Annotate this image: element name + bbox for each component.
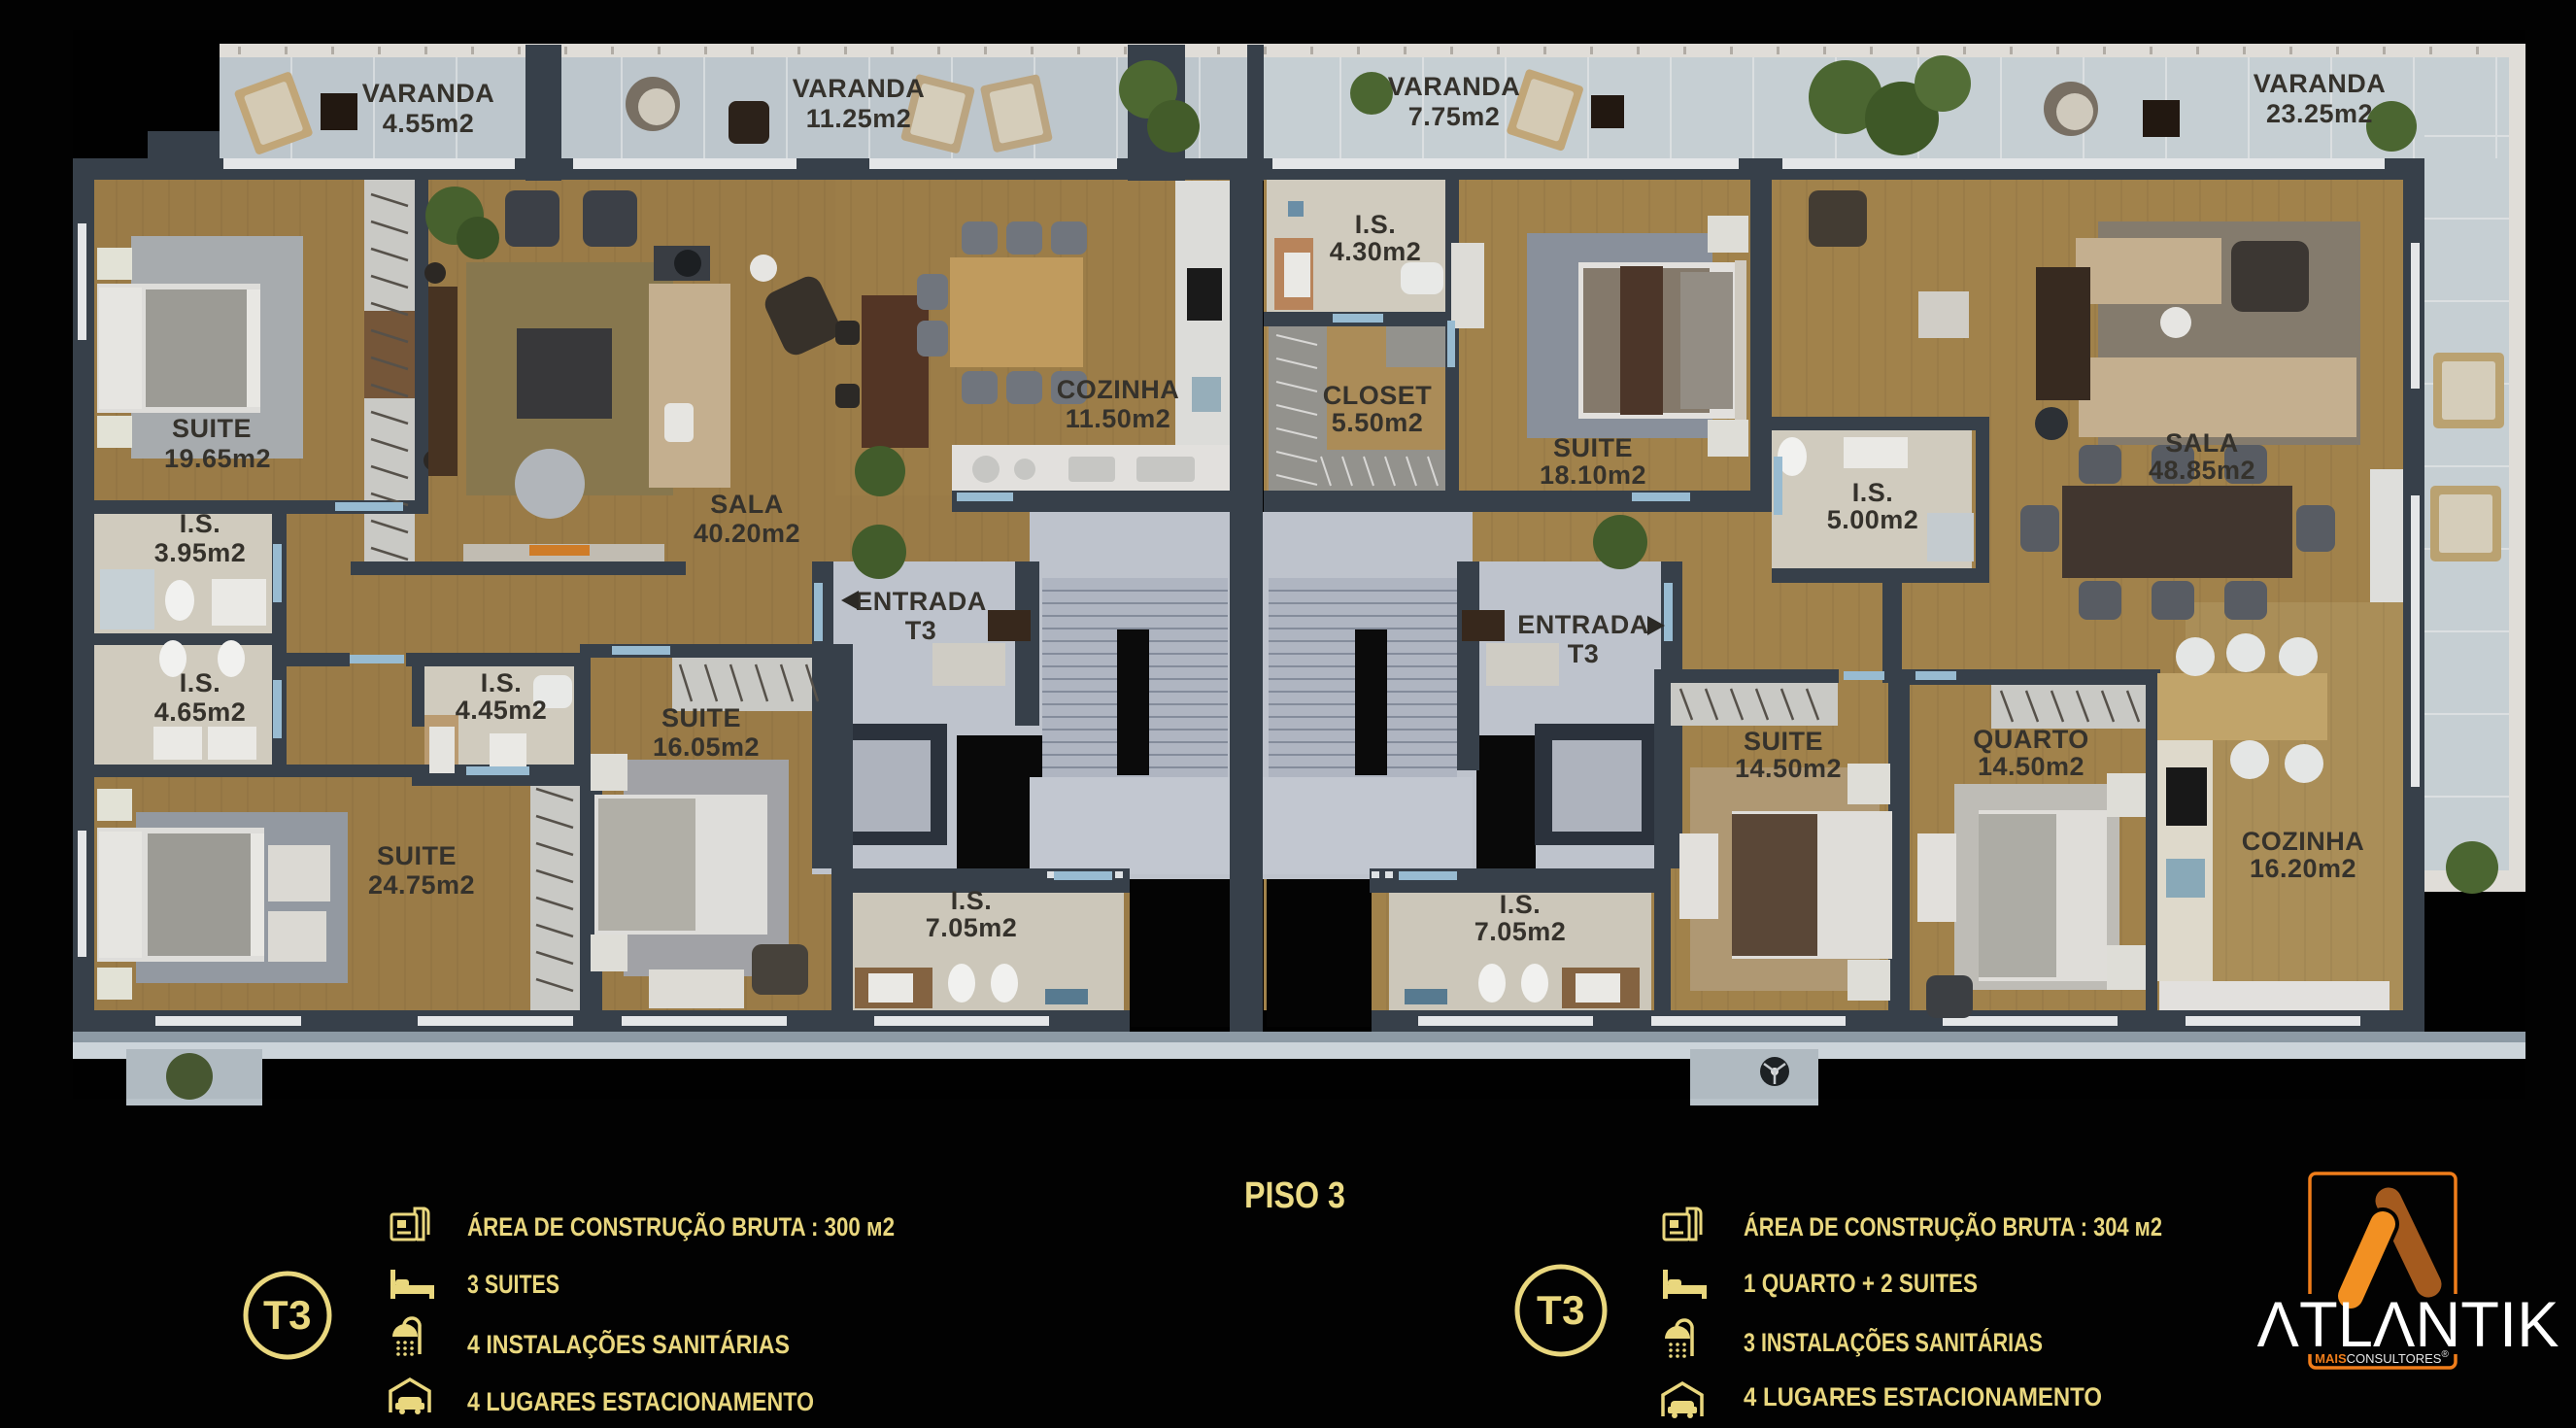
svg-text:1 QUARTO + 2 SUITES: 1 QUARTO + 2 SUITES — [1744, 1269, 1978, 1298]
svg-text:I.S.: I.S. — [180, 668, 221, 697]
svg-text:4.30m2: 4.30m2 — [1330, 237, 1422, 266]
svg-text:PISO 3: PISO 3 — [1244, 1175, 1345, 1216]
svg-text:CLOSET: CLOSET — [1323, 381, 1433, 410]
svg-text:11.25m2: 11.25m2 — [806, 104, 912, 133]
svg-text:SUITE: SUITE — [377, 841, 457, 870]
svg-text:4.55m2: 4.55m2 — [383, 109, 475, 138]
svg-text:3 INSTALAÇÕES SANITÁRIAS: 3 INSTALAÇÕES SANITÁRIAS — [1744, 1327, 2043, 1357]
svg-text:I.S.: I.S. — [1852, 478, 1894, 507]
svg-text:18.10m2: 18.10m2 — [1540, 460, 1646, 490]
svg-text:3.95m2: 3.95m2 — [154, 538, 247, 567]
svg-text:I.S.: I.S. — [1355, 210, 1397, 239]
svg-text:T3: T3 — [263, 1292, 312, 1338]
svg-text:COZINHA: COZINHA — [2242, 827, 2365, 856]
svg-text:SUITE: SUITE — [661, 703, 741, 732]
svg-text:4.65m2: 4.65m2 — [154, 697, 247, 727]
svg-text:48.85m2: 48.85m2 — [2149, 456, 2255, 485]
svg-text:VARANDA: VARANDA — [362, 79, 495, 108]
svg-text:16.05m2: 16.05m2 — [653, 732, 760, 762]
svg-text:5.00m2: 5.00m2 — [1827, 505, 1919, 534]
svg-text:T3: T3 — [1537, 1287, 1585, 1333]
svg-text:I.S.: I.S. — [1500, 890, 1542, 919]
svg-text:11.50m2: 11.50m2 — [1066, 404, 1171, 433]
svg-text:SALA: SALA — [710, 490, 784, 519]
svg-text:5.50m2: 5.50m2 — [1332, 408, 1424, 437]
svg-text:ENTRADA: ENTRADA — [855, 587, 987, 616]
svg-text:QUARTO: QUARTO — [1973, 725, 2089, 754]
svg-text:SUITE: SUITE — [1553, 433, 1633, 462]
svg-text:14.50m2: 14.50m2 — [1978, 752, 2085, 781]
svg-text:24.75m2: 24.75m2 — [368, 870, 475, 900]
svg-text:VARANDA: VARANDA — [2254, 69, 2387, 98]
svg-text:16.20m2: 16.20m2 — [2250, 854, 2356, 883]
svg-text:4 INSTALAÇÕES SANITÁRIAS: 4 INSTALAÇÕES SANITÁRIAS — [467, 1329, 790, 1359]
svg-text:SALA: SALA — [2165, 428, 2239, 458]
svg-text:VARANDA: VARANDA — [1388, 72, 1521, 101]
svg-text:ÁREA DE CONSTRUÇÃO BRUTA : 30: ÁREA DE CONSTRUÇÃO BRUTA : 304 м2 — [1744, 1211, 2162, 1241]
svg-text:SUITE: SUITE — [172, 414, 252, 443]
svg-text:I.S.: I.S. — [180, 509, 221, 538]
svg-text:40.20m2: 40.20m2 — [694, 519, 800, 548]
svg-text:ENTRADA: ENTRADA — [1517, 610, 1649, 639]
svg-text:7.75m2: 7.75m2 — [1408, 102, 1501, 131]
svg-text:3 SUITES: 3 SUITES — [467, 1270, 559, 1299]
svg-text:I.S.: I.S. — [481, 668, 523, 697]
svg-text:7.05m2: 7.05m2 — [926, 913, 1018, 942]
svg-text:4.45m2: 4.45m2 — [456, 696, 548, 725]
svg-text:COZINHA: COZINHA — [1057, 375, 1180, 404]
svg-text:T3: T3 — [1568, 639, 1600, 668]
svg-text:4 LUGARES ESTACIONAMENTO: 4 LUGARES ESTACIONAMENTO — [467, 1387, 814, 1416]
svg-text:23.25m2: 23.25m2 — [2266, 99, 2373, 128]
svg-text:MAISCONSULTORES®: MAISCONSULTORES® — [2315, 1349, 2449, 1366]
svg-text:14.50m2: 14.50m2 — [1735, 754, 1842, 783]
svg-text:T3: T3 — [905, 616, 937, 645]
svg-text:19.65m2: 19.65m2 — [164, 444, 271, 473]
svg-text:VARANDA: VARANDA — [793, 74, 926, 103]
svg-text:7.05m2: 7.05m2 — [1474, 917, 1567, 946]
svg-text:ÁREA DE CONSTRUÇÃO BRUTA : 30: ÁREA DE CONSTRUÇÃO BRUTA : 300 м2 — [467, 1211, 895, 1241]
svg-text:ΛTLΛNTIK: ΛTLΛNTIK — [2257, 1288, 2559, 1360]
svg-text:4 LUGARES ESTACIONAMENTO: 4 LUGARES ESTACIONAMENTO — [1744, 1382, 2102, 1411]
svg-text:I.S.: I.S. — [951, 886, 993, 915]
svg-text:SUITE: SUITE — [1744, 727, 1823, 756]
